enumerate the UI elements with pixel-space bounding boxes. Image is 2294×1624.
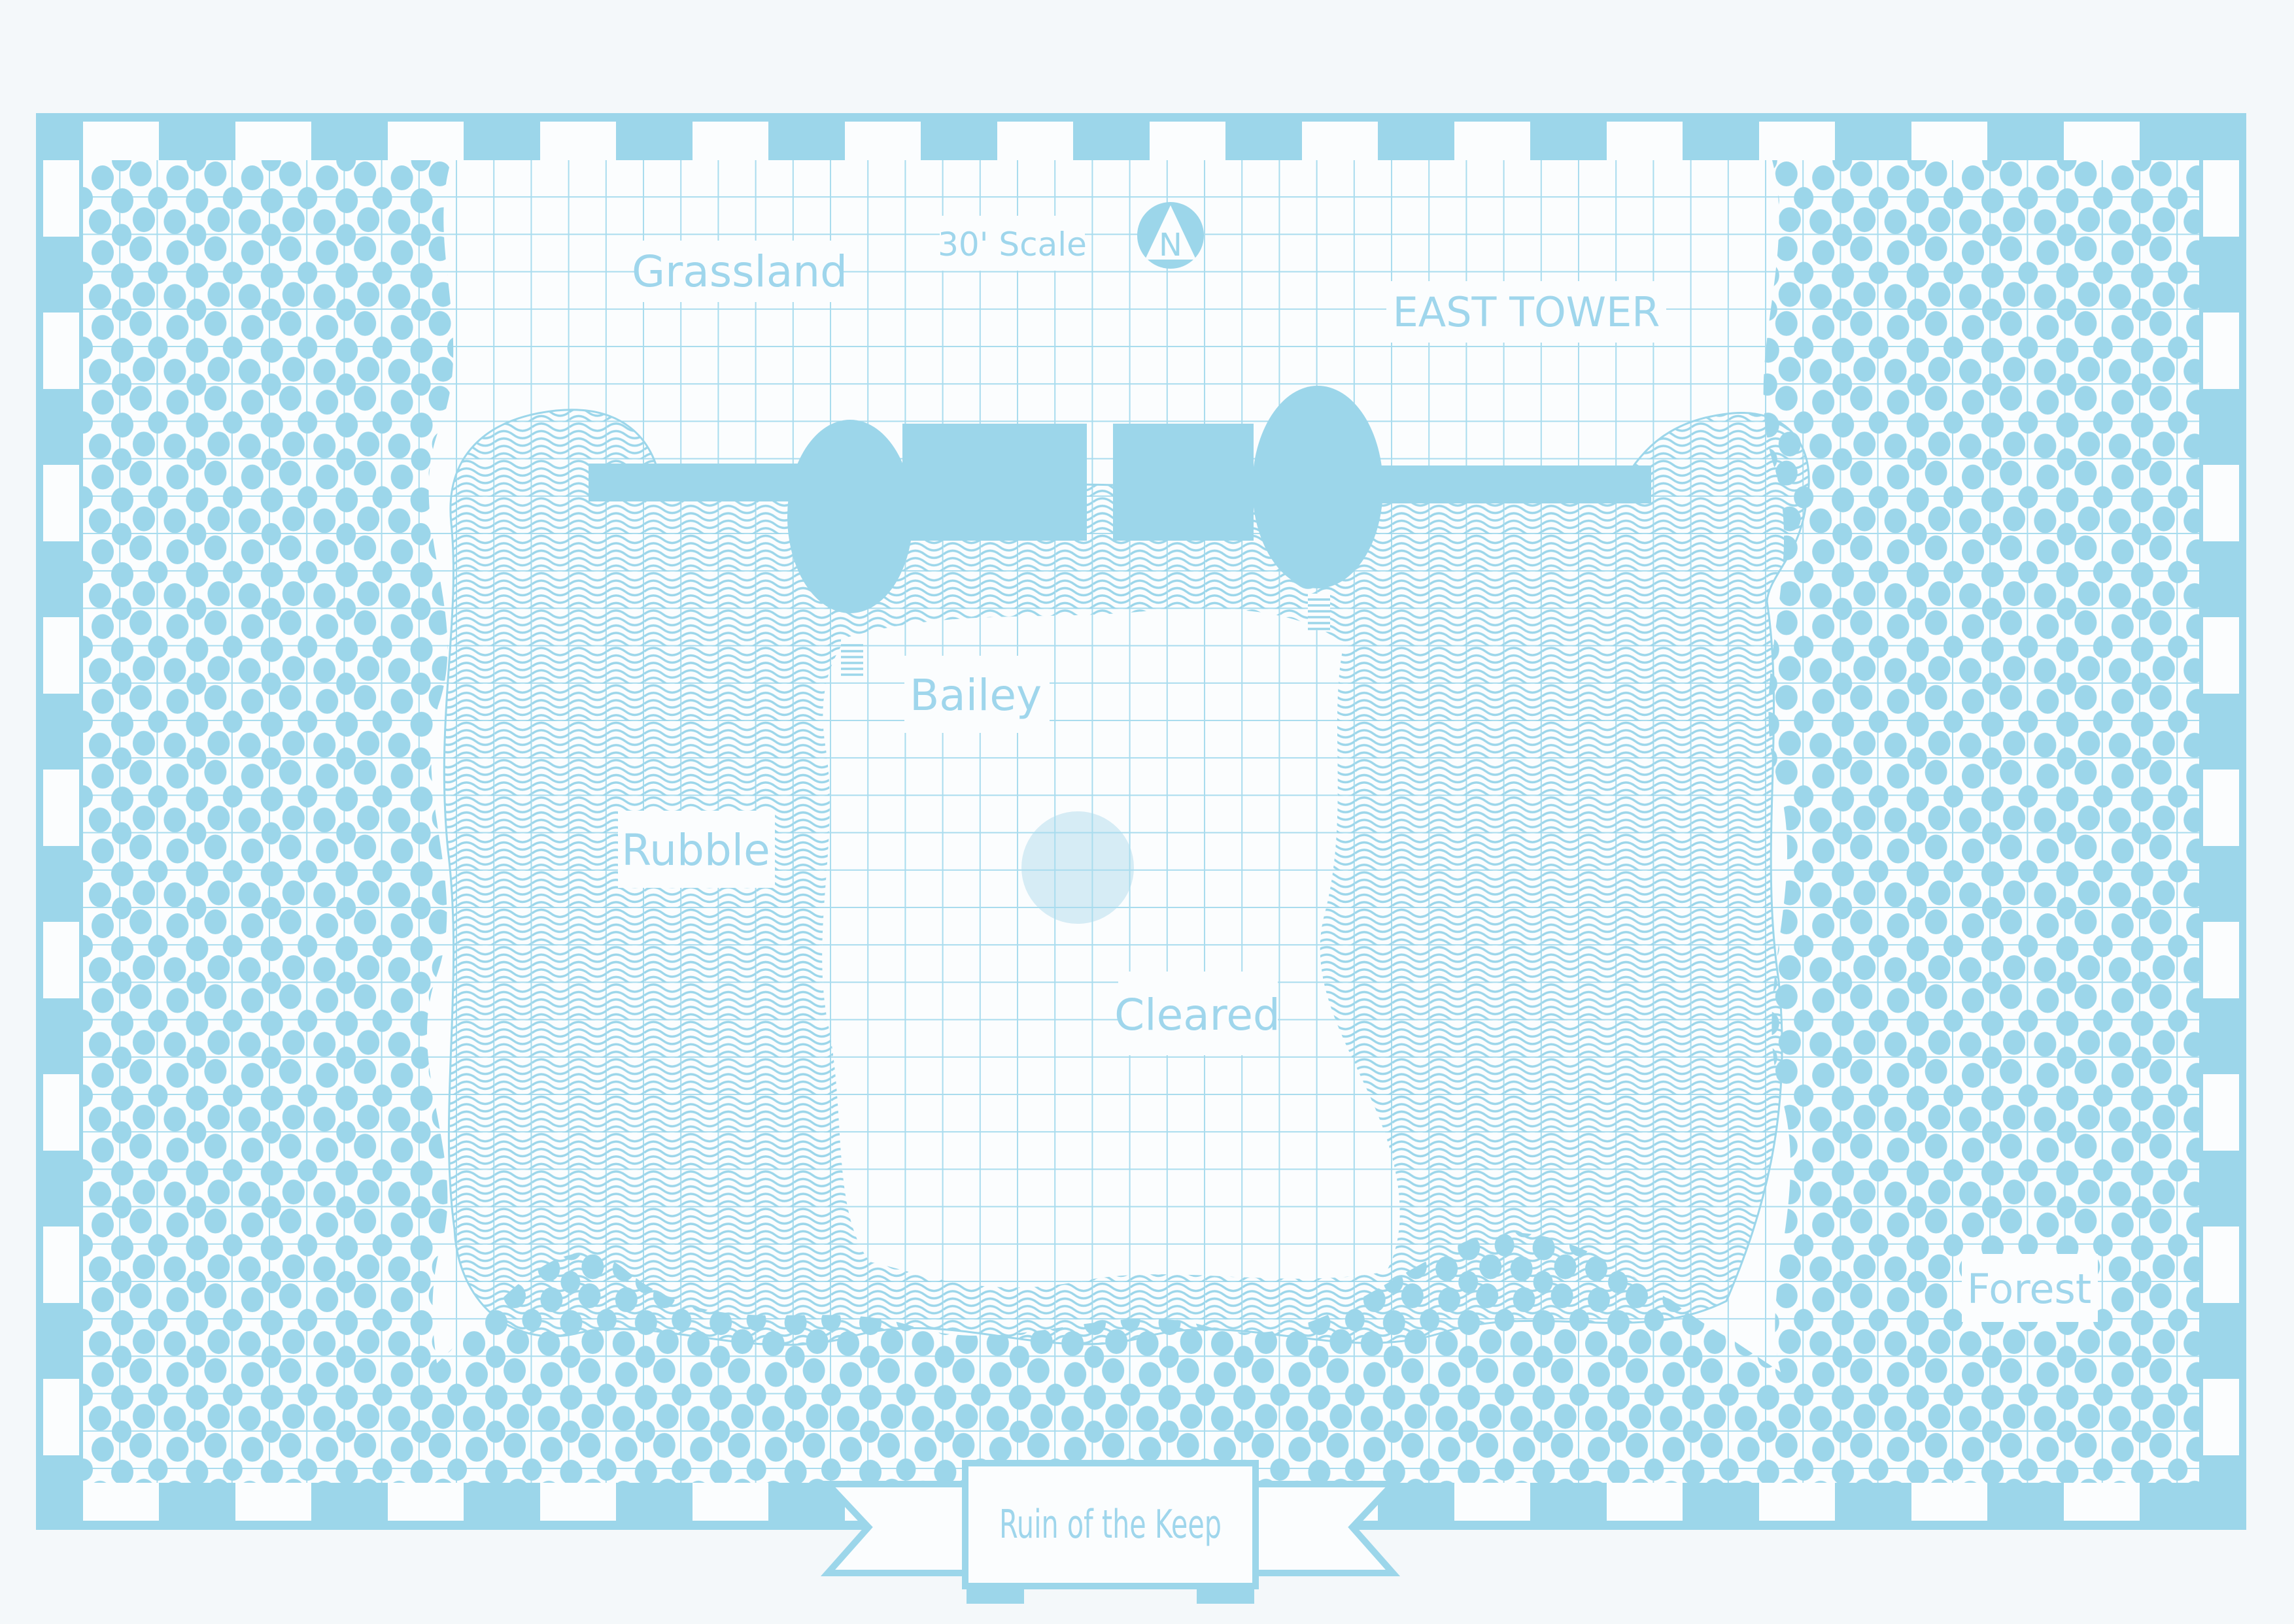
border-checker-cell xyxy=(2203,922,2239,998)
border-checker-cell xyxy=(2203,1379,2239,1455)
border-checker-cell xyxy=(1607,122,1683,160)
wall-west-thin xyxy=(589,464,798,501)
wall-east-thin xyxy=(1377,465,1651,503)
border-checker-cell xyxy=(1150,122,1225,160)
border-checker-cell xyxy=(1911,1483,1987,1521)
border-checker-cell xyxy=(388,122,464,160)
border-checker-cell xyxy=(83,122,159,160)
border-checker-cell xyxy=(43,1226,79,1303)
cleared-label: Cleared xyxy=(1114,990,1280,1040)
border-checker-cell xyxy=(2203,465,2239,541)
forest-label: Forest xyxy=(1967,1265,2091,1313)
border-checker-cell xyxy=(43,160,79,237)
border-checker-cell xyxy=(997,122,1073,160)
border-checker-cell xyxy=(2203,313,2239,389)
gatehouse-wall-left xyxy=(902,424,1087,541)
scale-label: 30' Scale xyxy=(938,226,1087,263)
border-checker-cell xyxy=(43,1379,79,1455)
border-checker-cell xyxy=(1759,1483,1835,1521)
border-checker-cell xyxy=(235,122,311,160)
banner-title: Ruin of the Keep xyxy=(999,1502,1222,1548)
border-checker-cell xyxy=(43,770,79,846)
compass-letter: N xyxy=(1159,227,1182,263)
banner-ribbon: Ruin of the Keep xyxy=(828,1463,1393,1604)
border-checker-cell xyxy=(1759,122,1835,160)
stairs-icon-west xyxy=(841,639,863,676)
east-tower xyxy=(1252,386,1383,588)
map-canvas: Grassland 30' Scale EAST TOWER Bailey Ru… xyxy=(0,0,2294,1621)
border-checker-cell xyxy=(2064,122,2140,160)
border-checker-cell xyxy=(693,1483,768,1521)
rubble-label: Rubble xyxy=(621,825,770,875)
border-checker-cell xyxy=(43,1074,79,1151)
border-checker-cell xyxy=(693,122,768,160)
border-checker-cell xyxy=(2064,1483,2140,1521)
border-checker-cell xyxy=(43,313,79,389)
border-checker-cell xyxy=(1454,122,1530,160)
border-checker-cell xyxy=(235,1483,311,1521)
border-checker-cell xyxy=(1302,122,1378,160)
border-checker-cell xyxy=(1911,122,1987,160)
border-checker-cell xyxy=(2203,617,2239,694)
border-checker-cell xyxy=(845,122,921,160)
keep-map: Grassland 30' Scale EAST TOWER Bailey Ru… xyxy=(0,0,2294,1621)
west-tower xyxy=(787,420,913,613)
border-checker-cell xyxy=(1454,1483,1530,1521)
border-checker-cell xyxy=(540,122,616,160)
gatehouse-wall-right xyxy=(1113,424,1254,541)
border-checker-cell xyxy=(43,922,79,998)
border-checker-cell xyxy=(43,465,79,541)
bailey-label: Bailey xyxy=(910,670,1042,720)
compass-icon: N xyxy=(1137,202,1204,269)
border-checker-cell xyxy=(1607,1483,1683,1521)
grassland-label: Grassland xyxy=(632,246,847,297)
border-checker-cell xyxy=(2203,770,2239,846)
border-checker-cell xyxy=(540,1483,616,1521)
border-checker-cell xyxy=(2203,160,2239,237)
region-forest-left xyxy=(83,160,453,1483)
border-checker-cell xyxy=(83,1483,159,1521)
border-checker-cell xyxy=(388,1483,464,1521)
well-circle xyxy=(1021,811,1134,924)
stairs-icon-east xyxy=(1308,594,1330,630)
east-tower-label: EAST TOWER xyxy=(1393,288,1660,336)
border-checker-cell xyxy=(43,617,79,694)
border-checker-cell xyxy=(2203,1074,2239,1151)
border-checker-cell xyxy=(2203,1226,2239,1303)
